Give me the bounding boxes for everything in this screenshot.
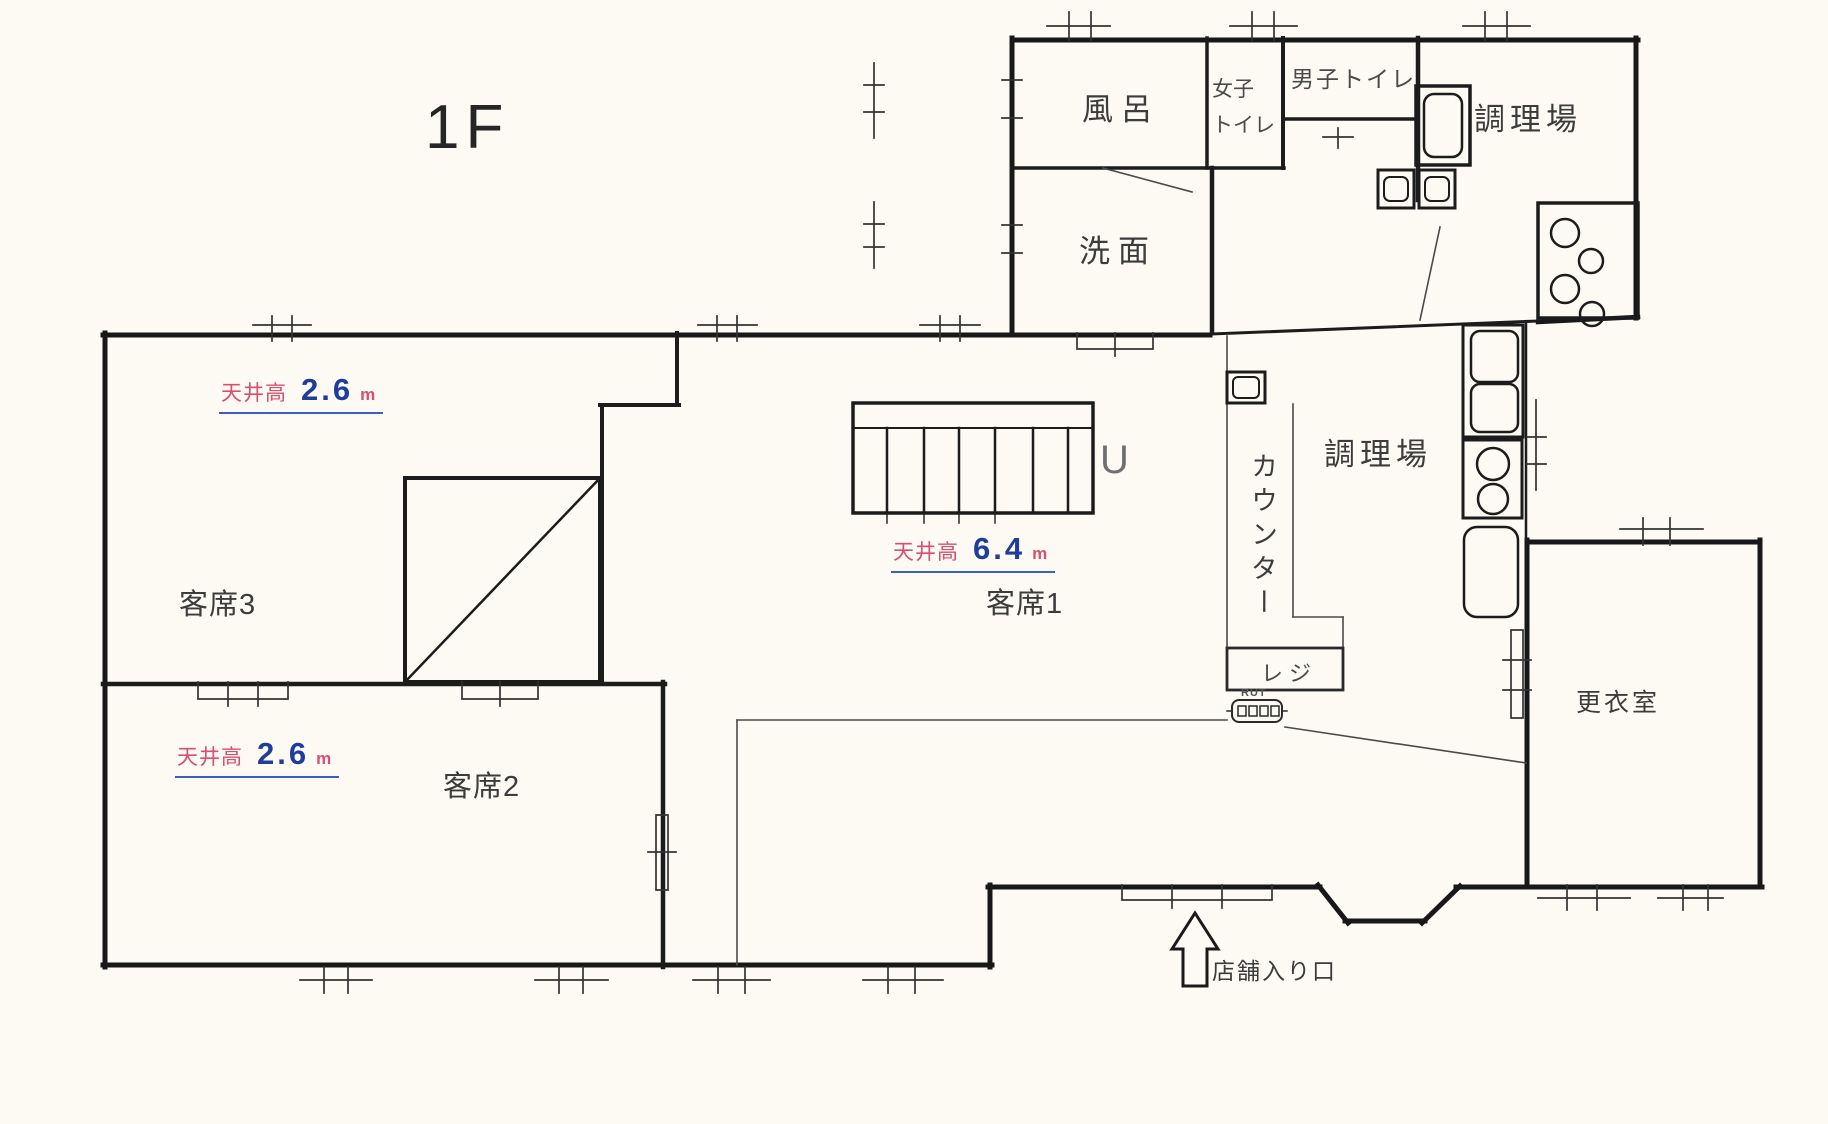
counter-appliance-icon (1227, 372, 1265, 403)
burner-unit-icon (1463, 440, 1522, 518)
room-label-seating3: 客席3 (179, 581, 256, 623)
ceiling-label: 天井高 (893, 541, 959, 564)
ceiling-value: 6.4 (973, 531, 1025, 566)
room-label-counter: カウンター (1243, 452, 1282, 622)
pos-machine-icon (1227, 700, 1287, 722)
ceiling-height-seating3: 天井高2.6m (219, 372, 383, 414)
tall-sink-icon (1464, 527, 1518, 617)
room-label-kitchen-main: 調理場 (1324, 429, 1432, 474)
stairs-box (405, 478, 600, 682)
room-label-changing-room: 更衣室 (1576, 683, 1660, 719)
womens-toilet-line1: 女子 (1212, 72, 1275, 108)
room-label-seating2: 客席2 (443, 763, 520, 805)
ceiling-value: 2.6 (257, 736, 309, 771)
striped-bench (853, 403, 1093, 523)
floor-plan-1f: 1F 風呂 女子 トイレ 男子トイレ 調理場 洗面 調理場 カウンター レジ R… (0, 0, 1828, 1124)
page-title: 1F (425, 92, 509, 163)
room-label-bath: 風呂 (1082, 84, 1160, 129)
stairs-up-mark: U (1100, 438, 1129, 483)
ceiling-unit: m (360, 385, 375, 404)
outer-walls (103, 38, 1762, 967)
room-label-mens-toilet: 男子トイレ (1291, 60, 1416, 94)
ceiling-unit: m (1032, 544, 1047, 563)
room-label-womens-toilet: 女子 トイレ (1212, 72, 1275, 143)
ceiling-label: 天井高 (221, 382, 287, 405)
ceiling-value: 2.6 (301, 372, 353, 407)
interior-walls (103, 38, 1538, 967)
double-sink-icon (1463, 325, 1523, 437)
room-label-kitchen-upper: 調理場 (1474, 94, 1582, 139)
stove-icon (1538, 203, 1638, 326)
label-register: レジ (1261, 656, 1317, 688)
womens-toilet-line2: トイレ (1212, 108, 1275, 144)
ceiling-height-seating1: 天井高6.4m (891, 531, 1055, 573)
sink-icon-upper (1416, 86, 1470, 165)
ceiling-label: 天井高 (177, 746, 243, 769)
label-pos-unit: RUT (1241, 687, 1267, 699)
ceiling-height-seating2: 天井高2.6m (175, 736, 339, 778)
room-label-washroom: 洗面 (1079, 226, 1157, 271)
entrance-label: 店舗入り口 (1212, 952, 1337, 986)
ceiling-unit: m (316, 749, 331, 768)
room-label-seating1: 客席1 (986, 580, 1063, 622)
